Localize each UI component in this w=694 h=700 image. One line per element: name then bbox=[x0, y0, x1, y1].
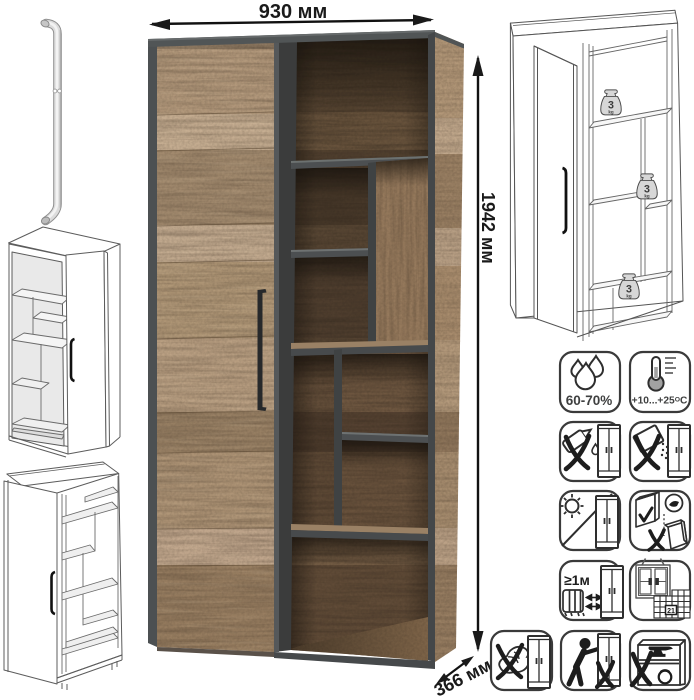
svg-text:60-70%: 60-70% bbox=[566, 393, 613, 408]
svg-text:+10...+25ОС: +10...+25ОС bbox=[632, 396, 688, 407]
svg-text:930 мм: 930 мм bbox=[259, 1, 328, 23]
svg-text:1942 мм: 1942 мм bbox=[478, 192, 498, 264]
svg-text:21: 21 bbox=[667, 608, 675, 615]
svg-text:≥1м: ≥1м bbox=[564, 572, 590, 588]
